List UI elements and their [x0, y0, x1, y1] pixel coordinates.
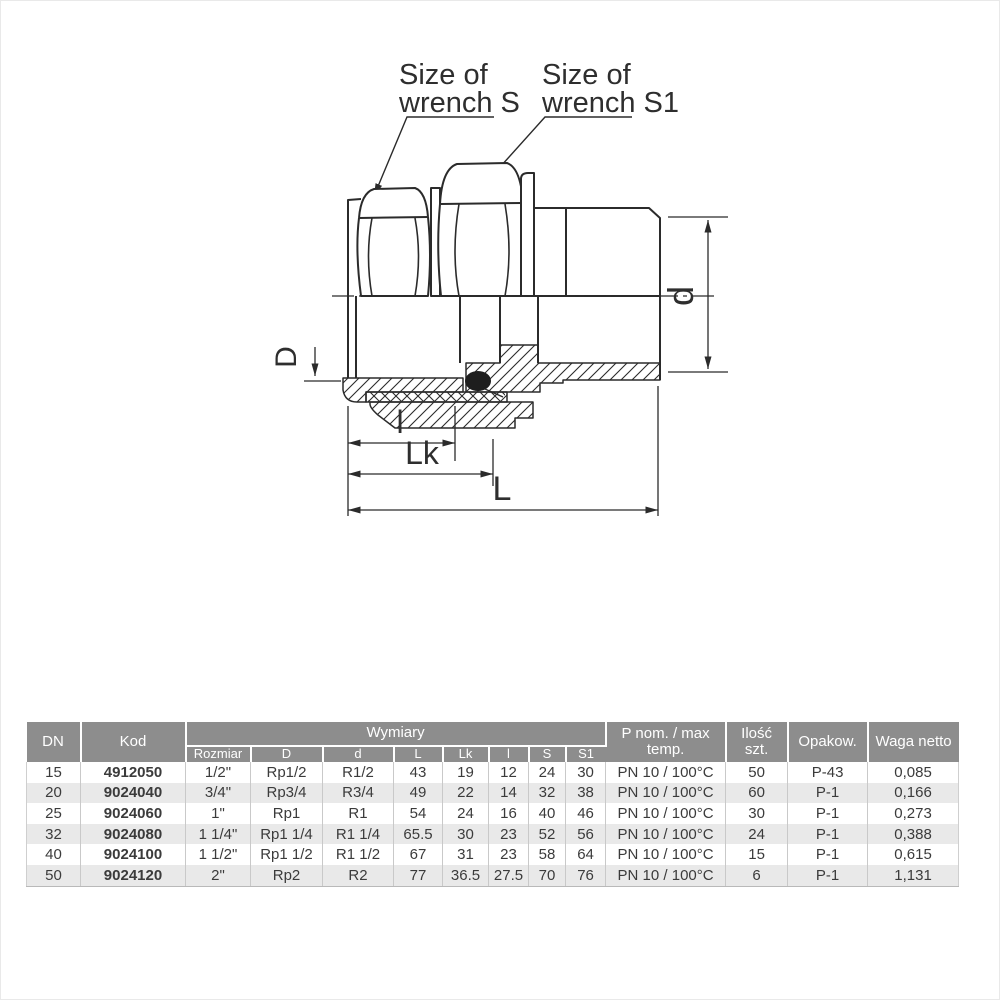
table-row: 2090240403/4"Rp3/4R3/44922143238PN 10 / … — [27, 783, 959, 804]
table-cell: 0,388 — [868, 824, 959, 845]
subheader-D: D — [251, 746, 323, 762]
subheader-S1: S1 — [566, 746, 606, 762]
table-cell: 9024060 — [81, 803, 186, 824]
table-cell: 0,615 — [868, 844, 959, 865]
table-row: 5090241202"Rp2R27736.527.57076PN 10 / 10… — [27, 865, 959, 886]
subheader-S: S — [529, 746, 566, 762]
male-wall-section — [466, 345, 660, 392]
table-cell: PN 10 / 100°C — [606, 824, 726, 845]
table-cell: 22 — [443, 783, 489, 804]
dim-Lk-label: Lk — [405, 435, 440, 471]
subheader-d: d — [323, 746, 394, 762]
table-cell: 4912050 — [81, 762, 186, 783]
table-cell: R3/4 — [323, 783, 394, 804]
table-cell: 1 1/2" — [186, 844, 251, 865]
subheader-rozmiar: Rozmiar — [186, 746, 251, 762]
table-cell: Rp1 — [251, 803, 323, 824]
union-nut-chamfer-line — [441, 203, 522, 204]
table-cell: 16 — [489, 803, 529, 824]
table-cell: 58 — [529, 844, 566, 865]
table-cell: 0,166 — [868, 783, 959, 804]
table-cell: R1 — [323, 803, 394, 824]
table-cell: 27.5 — [489, 865, 529, 886]
table-cell: 40 — [27, 844, 81, 865]
subheader-Lk: Lk — [443, 746, 489, 762]
table-cell: PN 10 / 100°C — [606, 803, 726, 824]
hatch-sections — [343, 345, 660, 428]
table-cell: 25 — [27, 803, 81, 824]
table-cell: Rp3/4 — [251, 783, 323, 804]
table-cell: 6 — [726, 865, 788, 886]
subheader-L: L — [394, 746, 443, 762]
table-row: 4090241001 1/2"Rp1 1/2R1 1/26731235864PN… — [27, 844, 959, 865]
small-nut-chamfer-line — [359, 217, 428, 218]
table-cell: 46 — [566, 803, 606, 824]
spec-table: DN Kod Wymiary P nom. / max temp. Ilość … — [26, 722, 959, 887]
table-cell: 64 — [566, 844, 606, 865]
cross-hatch-overlay — [368, 392, 505, 402]
table-cell: 31 — [443, 844, 489, 865]
table-cell: 0,085 — [868, 762, 959, 783]
table-cell: PN 10 / 100°C — [606, 783, 726, 804]
table-cell: 56 — [566, 824, 606, 845]
table-cell: 24 — [443, 803, 489, 824]
header-ilosc-line1: Ilość — [727, 726, 787, 743]
table-cell: Rp1/2 — [251, 762, 323, 783]
table-cell: R1 1/2 — [323, 844, 394, 865]
table-cell: PN 10 / 100°C — [606, 762, 726, 783]
male-threaded-end — [534, 208, 660, 296]
dim-l-label: l — [396, 404, 403, 440]
table-cell: 12 — [489, 762, 529, 783]
callout-s-line2: wrench S — [398, 87, 520, 119]
table-cell: 70 — [529, 865, 566, 886]
header-kod: Kod — [81, 722, 186, 762]
spec-table-header: DN Kod Wymiary P nom. / max temp. Ilość … — [27, 722, 959, 762]
table-cell: 67 — [394, 844, 443, 865]
table-cell: R2 — [323, 865, 394, 886]
table-cell: 32 — [529, 783, 566, 804]
table-cell: P-1 — [788, 844, 868, 865]
table-cell: 23 — [489, 844, 529, 865]
table-cell: 20 — [27, 783, 81, 804]
table-cell: 65.5 — [394, 824, 443, 845]
table-cell: 9024040 — [81, 783, 186, 804]
header-waga: Waga netto — [868, 722, 959, 762]
table-cell: 77 — [394, 865, 443, 886]
callout-size-of-wrench-s: Size of wrench S — [398, 59, 520, 119]
table-cell: 52 — [529, 824, 566, 845]
table-row: 1549120501/2"Rp1/2R1/24319122430PN 10 / … — [27, 762, 959, 783]
table-row: 2590240601"Rp1R15424164046PN 10 / 100°C3… — [27, 803, 959, 824]
table-cell: 15 — [726, 844, 788, 865]
table-cell: R1 1/4 — [323, 824, 394, 845]
table-cell: 40 — [529, 803, 566, 824]
table-cell: 23 — [489, 824, 529, 845]
table-cell: 1 1/4" — [186, 824, 251, 845]
table-row: 3290240801 1/4"Rp1 1/4R1 1/465.530235256… — [27, 824, 959, 845]
table-cell: P-43 — [788, 762, 868, 783]
dim-d-label: d — [660, 286, 701, 306]
table-cell: 30 — [443, 824, 489, 845]
spec-table-body: 1549120501/2"Rp1/2R1/24319122430PN 10 / … — [27, 762, 959, 886]
table-cell: 30 — [726, 803, 788, 824]
union-nut-lower-section — [370, 402, 533, 428]
table-cell: Rp2 — [251, 865, 323, 886]
table-cell: P-1 — [788, 783, 868, 804]
table-cell: 50 — [726, 762, 788, 783]
table-cell: 38 — [566, 783, 606, 804]
table-cell: 1,131 — [868, 865, 959, 886]
table-cell: 9024120 — [81, 865, 186, 886]
callout-s1-line2: wrench S1 — [541, 87, 679, 119]
table-cell: 50 — [27, 865, 81, 886]
table-cell: 14 — [489, 783, 529, 804]
header-ilosc: Ilość szt. — [726, 722, 788, 762]
header-pnom-line1: P nom. / max — [607, 726, 725, 743]
table-cell: Rp1 1/2 — [251, 844, 323, 865]
header-ilosc-line2: szt. — [727, 742, 787, 759]
table-cell: 2" — [186, 865, 251, 886]
table-cell: 60 — [726, 783, 788, 804]
technical-drawing: Size of wrench S Size of wrench S1 — [0, 0, 1000, 660]
table-cell: R1/2 — [323, 762, 394, 783]
table-cell: 30 — [566, 762, 606, 783]
table-cell: 1" — [186, 803, 251, 824]
table-cell: 9024080 — [81, 824, 186, 845]
dim-D-label: D — [270, 346, 303, 368]
header-opakow: Opakow. — [788, 722, 868, 762]
header-pnom: P nom. / max temp. — [606, 722, 726, 762]
table-cell: P-1 — [788, 865, 868, 886]
union-hex-nut — [438, 163, 525, 296]
table-cell: P-1 — [788, 824, 868, 845]
table-cell: 54 — [394, 803, 443, 824]
table-cell: 24 — [529, 762, 566, 783]
table-cell: 36.5 — [443, 865, 489, 886]
table-cell: 32 — [27, 824, 81, 845]
table-cell: Rp1 1/4 — [251, 824, 323, 845]
table-cell: PN 10 / 100°C — [606, 844, 726, 865]
table-cell: PN 10 / 100°C — [606, 865, 726, 886]
header-wymiary: Wymiary — [186, 722, 606, 746]
catalog-page: Size of wrench S Size of wrench S1 — [0, 0, 1000, 1000]
table-cell: 43 — [394, 762, 443, 783]
subheader-l: l — [489, 746, 529, 762]
header-dn: DN — [27, 722, 81, 762]
table-cell: 49 — [394, 783, 443, 804]
table-cell: 3/4" — [186, 783, 251, 804]
table-cell: 24 — [726, 824, 788, 845]
table-cell: 19 — [443, 762, 489, 783]
header-pnom-line2: temp. — [607, 742, 725, 759]
table-cell: 9024100 — [81, 844, 186, 865]
table-cell: 15 — [27, 762, 81, 783]
table-cell: 0,273 — [868, 803, 959, 824]
dim-L-label: L — [493, 470, 512, 508]
table-cell: P-1 — [788, 803, 868, 824]
table-cell: 1/2" — [186, 762, 251, 783]
callout-size-of-wrench-s1: Size of wrench S1 — [541, 59, 679, 119]
collar — [521, 173, 534, 296]
table-cell: 76 — [566, 865, 606, 886]
